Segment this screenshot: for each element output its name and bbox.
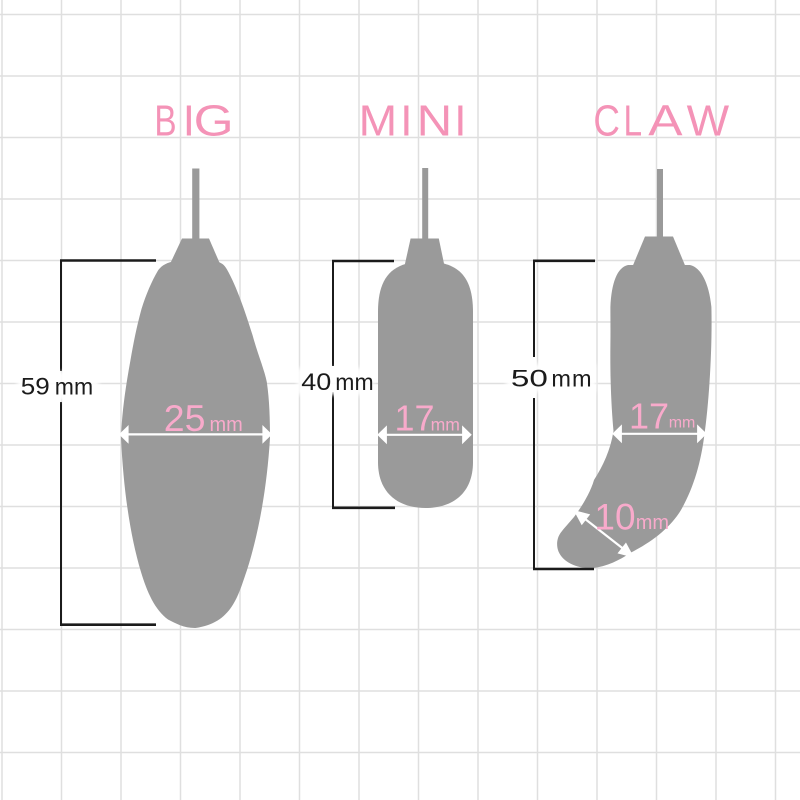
svg-text:17: 17	[394, 398, 434, 439]
svg-text:40mm: 40mm	[301, 369, 373, 396]
svg-text:mm: mm	[210, 414, 243, 436]
svg-text:mm: mm	[636, 512, 669, 534]
svg-text:B: B	[154, 96, 176, 145]
svg-text:59mm: 59mm	[21, 374, 93, 401]
svg-text:A: A	[648, 96, 683, 145]
svg-text:I: I	[454, 96, 466, 145]
svg-text:mm: mm	[669, 415, 696, 432]
svg-text:N: N	[417, 96, 453, 145]
svg-text:C: C	[593, 96, 620, 145]
svg-text:25: 25	[164, 397, 206, 439]
svg-text:10: 10	[594, 497, 635, 538]
svg-text:L: L	[624, 96, 643, 145]
svg-text:I: I	[400, 96, 412, 145]
svg-text:mm: mm	[431, 415, 460, 435]
svg-text:W: W	[687, 96, 730, 145]
svg-text:M: M	[359, 96, 398, 145]
svg-text:50mm: 50mm	[511, 366, 593, 393]
svg-text:17: 17	[629, 396, 669, 437]
svg-text:G: G	[194, 96, 234, 145]
